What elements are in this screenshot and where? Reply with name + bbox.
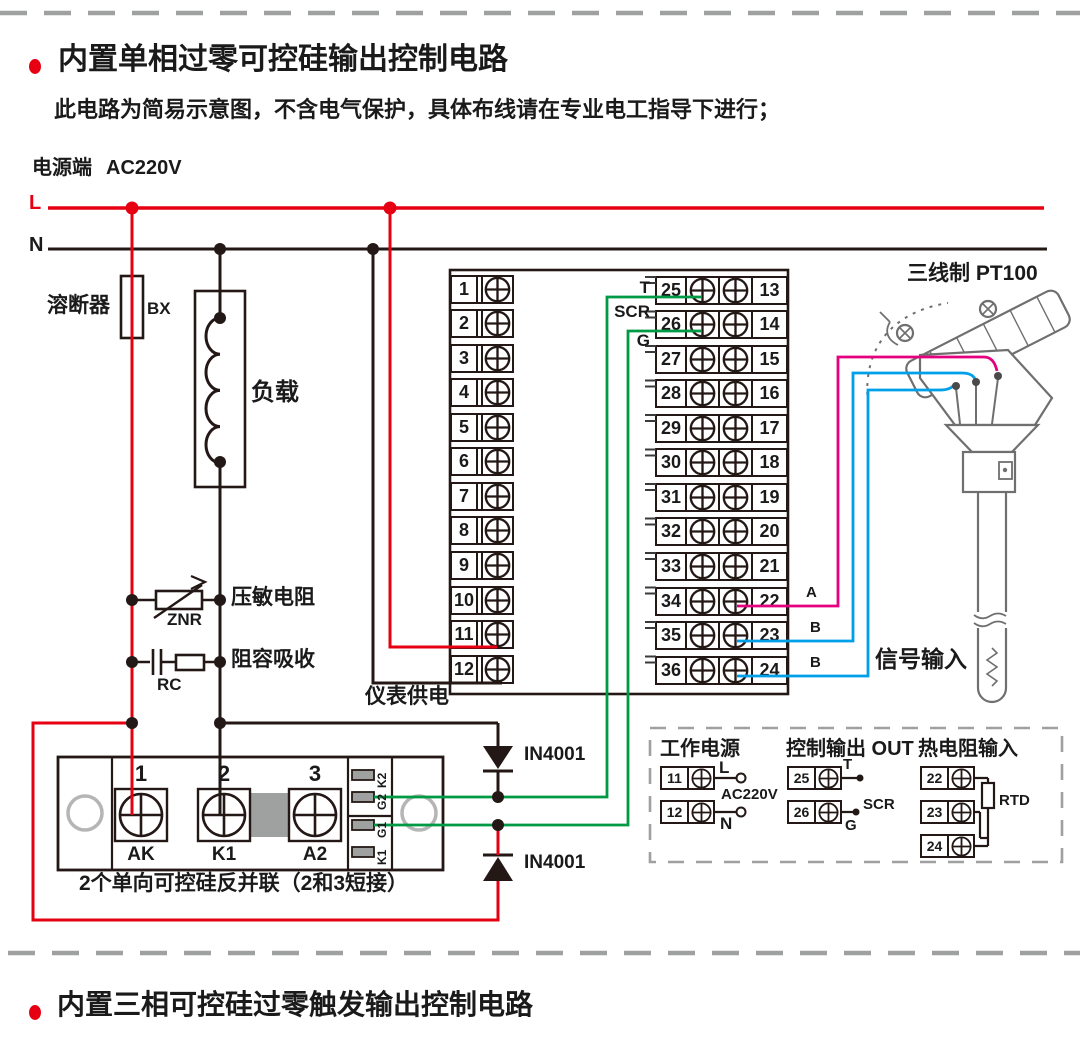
legend-g-label: G: [845, 818, 857, 833]
diode2-label: IN4001: [524, 853, 585, 872]
legend-voltage-label: AC220V: [721, 787, 778, 802]
legend-g3-title: 热电阻输入: [918, 739, 1018, 759]
module-terminal-3: 3: [303, 763, 327, 785]
fuse-label: 溶断器: [47, 295, 110, 316]
module-caption: 2个单向可控硅反并联（2和3短接）: [79, 873, 408, 894]
sensor-wire-b2-label: B: [810, 655, 821, 670]
rc-label: 阻容吸收: [231, 649, 315, 670]
section1-title: 内置单相过零可控硅输出控制电路: [58, 45, 508, 75]
instrument-supply-label: 仪表供电: [365, 686, 449, 707]
legend-g1-title: 工作电源: [660, 739, 740, 759]
load-label: 负载: [251, 381, 299, 405]
module-terminal-2: 2: [212, 763, 236, 785]
section1-bullet-icon: [29, 59, 41, 74]
output-scr-label: SCR: [608, 303, 650, 320]
output-t-label: T: [618, 279, 650, 296]
gate-label-g2: G2: [376, 784, 388, 810]
legend-t-label: T: [843, 757, 852, 772]
labels-layer: 内置单相过零可控硅输出控制电路 此电路为简易示意图，不含电气保护，具体布线请在专…: [0, 0, 1080, 1039]
section2-title: 内置三相可控硅过零触发输出控制电路: [57, 991, 533, 1019]
diode1-label: IN4001: [524, 745, 585, 764]
legend-n-label: N: [720, 815, 732, 832]
output-g-label: G: [618, 332, 650, 349]
varistor-code: ZNR: [167, 611, 202, 628]
legend-rtd-label: RTD: [999, 793, 1030, 808]
gate-label-g1: G1: [376, 812, 388, 838]
module-name-a2: A2: [297, 845, 333, 864]
signal-input-label: 信号输入: [875, 648, 967, 671]
gate-label-k1: K1: [376, 839, 388, 865]
line-n-label: N: [29, 235, 43, 255]
legend-l-label: L: [719, 759, 729, 776]
wiring-diagram-canvas: 1 2 3 4 5 6 7 8 9 10 11 12: [0, 0, 1080, 1039]
section2-bullet-icon: [29, 1005, 41, 1020]
power-voltage: AC220V: [106, 158, 182, 178]
module-terminal-1: 1: [129, 763, 153, 785]
legend-scr-label: SCR: [863, 797, 895, 812]
module-name-ak: AK: [123, 845, 159, 864]
rc-code: RC: [157, 676, 182, 693]
sensor-wire-b1-label: B: [810, 620, 821, 635]
varistor-label: 压敏电阻: [231, 587, 315, 608]
module-name-k1: K1: [206, 845, 242, 864]
section1-note: 此电路为简易示意图，不含电气保护，具体布线请在专业电工指导下进行；: [54, 99, 780, 121]
sensor-title: 三线制 PT100: [907, 263, 1038, 284]
power-terminal-label: 电源端: [32, 158, 92, 178]
sensor-wire-a-label: A: [806, 585, 817, 600]
fuse-code: BX: [147, 300, 171, 317]
line-l-label: L: [29, 193, 41, 213]
